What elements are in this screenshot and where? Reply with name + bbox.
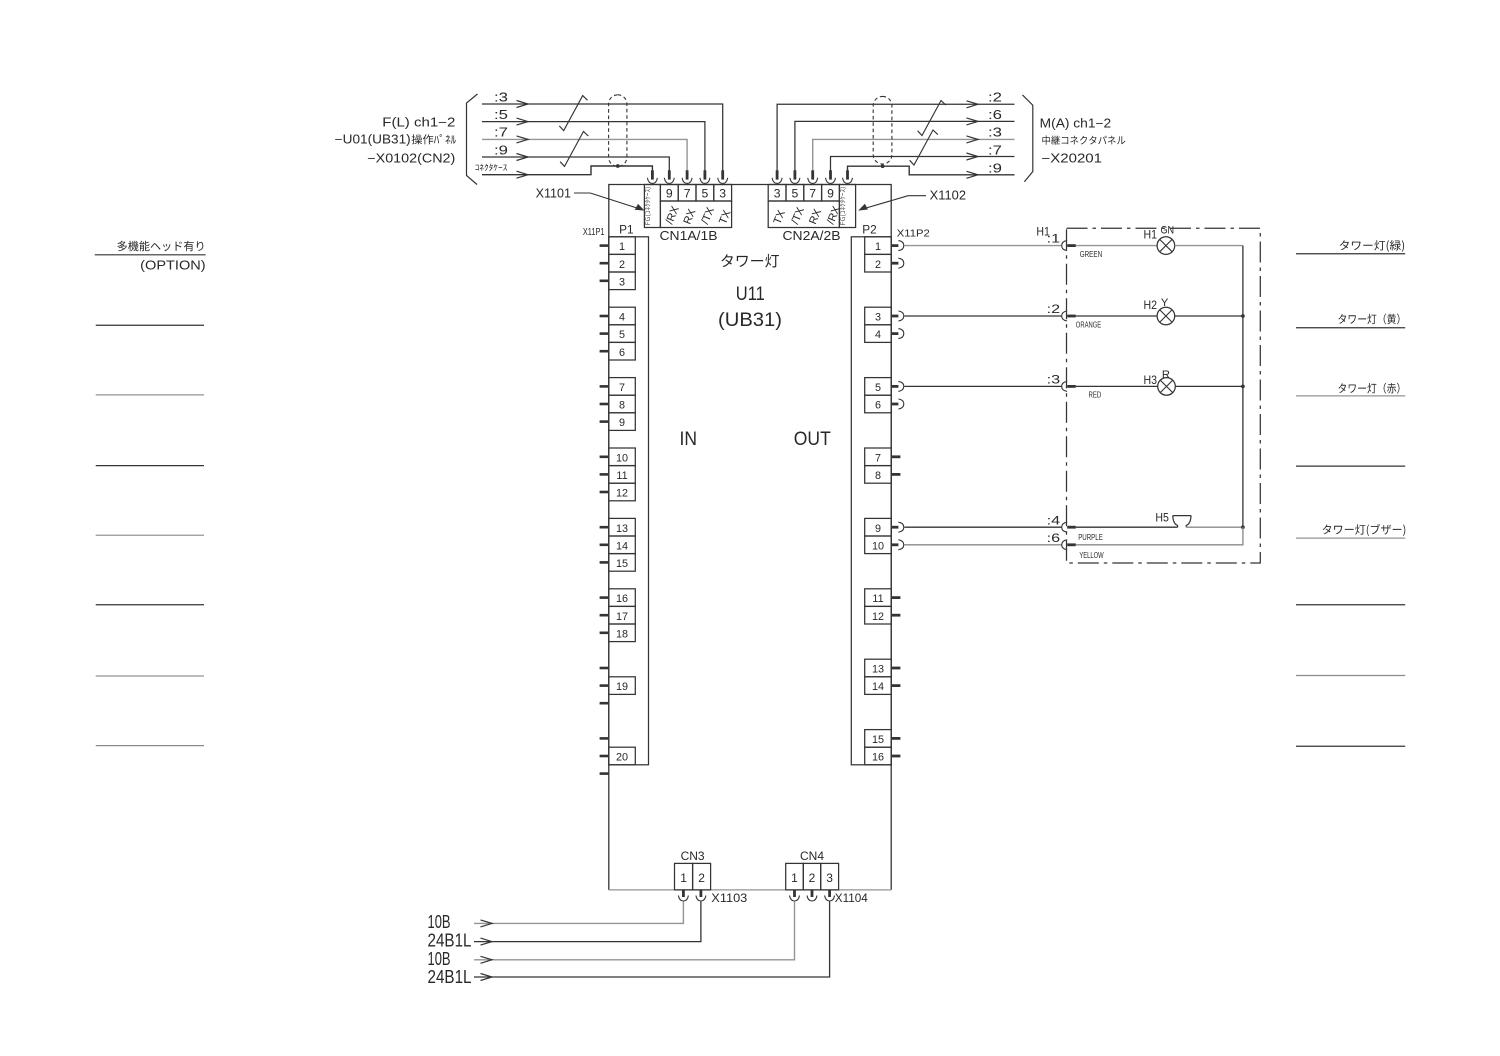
svg-text:YELLOW: YELLOW: [1079, 550, 1104, 560]
svg-text:2: 2: [698, 871, 705, 885]
svg-text::2: :2: [988, 90, 1002, 105]
svg-text:2: 2: [619, 259, 625, 271]
svg-text:15: 15: [872, 734, 884, 746]
svg-text:1: 1: [875, 241, 881, 253]
svg-text:10B: 10B: [428, 949, 451, 969]
svg-text::6: :6: [1047, 531, 1061, 545]
svg-text::6: :6: [988, 107, 1002, 122]
svg-text:CN4: CN4: [800, 849, 824, 863]
svg-text:RED: RED: [1089, 390, 1102, 400]
svg-text:IN: IN: [680, 428, 698, 450]
svg-text:7: 7: [875, 452, 881, 464]
svg-text:X1104: X1104: [835, 891, 868, 905]
svg-text:14: 14: [872, 681, 884, 693]
svg-text:OUT: OUT: [794, 428, 831, 450]
svg-text:5: 5: [619, 329, 625, 341]
svg-text::3: :3: [494, 89, 508, 104]
svg-text:5: 5: [792, 187, 799, 201]
svg-text:16: 16: [616, 593, 628, 605]
svg-text:4: 4: [619, 312, 625, 324]
svg-text:12: 12: [872, 611, 884, 623]
svg-text:(OPTION): (OPTION): [140, 258, 205, 273]
svg-text:CN3: CN3: [681, 849, 705, 863]
svg-text::3: :3: [988, 125, 1002, 140]
svg-text:16: 16: [872, 752, 884, 764]
svg-text:13: 13: [616, 523, 628, 535]
svg-text:12: 12: [616, 488, 628, 500]
svg-text:20: 20: [616, 752, 628, 764]
svg-text:6: 6: [875, 400, 881, 412]
svg-text:3: 3: [826, 871, 833, 885]
svg-text::2: :2: [1047, 302, 1061, 316]
svg-text:9: 9: [666, 187, 673, 201]
svg-text:ORANGE: ORANGE: [1076, 320, 1102, 330]
svg-text:8: 8: [875, 470, 881, 482]
svg-text:3: 3: [774, 187, 781, 201]
svg-text::3: :3: [1047, 373, 1061, 387]
svg-text:10B: 10B: [428, 912, 451, 932]
svg-text:(UB31): (UB31): [718, 309, 782, 331]
svg-text::9: :9: [494, 142, 508, 157]
svg-text:H3: H3: [1144, 374, 1158, 387]
svg-text:X1102: X1102: [930, 188, 966, 203]
svg-text:15: 15: [616, 558, 628, 570]
svg-text:−X20201: −X20201: [1042, 151, 1103, 165]
svg-text:GREEN: GREEN: [1080, 249, 1103, 259]
svg-text:9: 9: [619, 417, 625, 429]
svg-text:7: 7: [684, 187, 691, 201]
svg-text:7: 7: [809, 187, 816, 201]
svg-text:10: 10: [872, 540, 884, 552]
svg-text:24B1L: 24B1L: [428, 930, 472, 950]
svg-text:18: 18: [616, 628, 628, 640]
svg-text::5: :5: [494, 107, 508, 122]
svg-text:H1: H1: [1036, 226, 1050, 239]
svg-text:2: 2: [875, 259, 881, 271]
svg-text:9: 9: [875, 523, 881, 535]
svg-text:19: 19: [616, 681, 628, 693]
svg-text:3: 3: [619, 276, 625, 288]
svg-text:14: 14: [616, 540, 628, 552]
svg-text:8: 8: [619, 400, 625, 412]
svg-text:3: 3: [719, 187, 726, 201]
svg-text:PURPLE: PURPLE: [1078, 532, 1103, 542]
svg-text:−U01(UB31): −U01(UB31): [335, 133, 411, 147]
svg-text:11: 11: [872, 593, 883, 605]
svg-text:X1103: X1103: [711, 891, 747, 905]
svg-text:13: 13: [872, 664, 884, 676]
svg-text:CN2A/2B: CN2A/2B: [783, 228, 841, 243]
svg-text:17: 17: [616, 611, 628, 623]
svg-text:U11: U11: [736, 283, 765, 305]
svg-text::7: :7: [988, 142, 1002, 157]
svg-text:9: 9: [827, 187, 834, 201]
svg-text:CN1A/1B: CN1A/1B: [660, 228, 718, 243]
svg-text:1: 1: [680, 871, 687, 885]
svg-text:3: 3: [875, 312, 881, 324]
svg-text::4: :4: [1047, 513, 1061, 527]
svg-text:11: 11: [616, 470, 627, 482]
svg-text:H5: H5: [1155, 512, 1169, 525]
svg-text:24B1L: 24B1L: [428, 967, 472, 987]
svg-text:5: 5: [702, 187, 709, 201]
svg-text:F(L) ch1−2: F(L) ch1−2: [382, 115, 455, 129]
svg-text:Y: Y: [1161, 297, 1169, 309]
svg-text:X11P2: X11P2: [897, 229, 930, 240]
svg-text:H2: H2: [1144, 299, 1158, 312]
svg-text::9: :9: [988, 160, 1002, 175]
svg-text:GN: GN: [1161, 225, 1175, 237]
svg-text:X11P1: X11P1: [583, 227, 605, 238]
svg-text:M(A) ch1−2: M(A) ch1−2: [1040, 116, 1112, 130]
svg-text:2: 2: [809, 871, 816, 885]
svg-text:5: 5: [875, 382, 881, 394]
svg-text::7: :7: [494, 125, 508, 140]
svg-text:H1: H1: [1144, 229, 1158, 242]
svg-text:6: 6: [619, 347, 625, 359]
svg-text:P1: P1: [619, 222, 633, 236]
svg-text:−X0102(CN2): −X0102(CN2): [367, 151, 455, 165]
svg-text:R: R: [1162, 369, 1170, 381]
svg-text:1: 1: [619, 241, 625, 253]
svg-text:10: 10: [616, 452, 628, 464]
svg-text:1: 1: [791, 871, 798, 885]
svg-text:P2: P2: [862, 222, 876, 236]
svg-text:4: 4: [875, 329, 881, 341]
svg-text:7: 7: [619, 382, 625, 394]
svg-text:X1101: X1101: [536, 185, 571, 200]
